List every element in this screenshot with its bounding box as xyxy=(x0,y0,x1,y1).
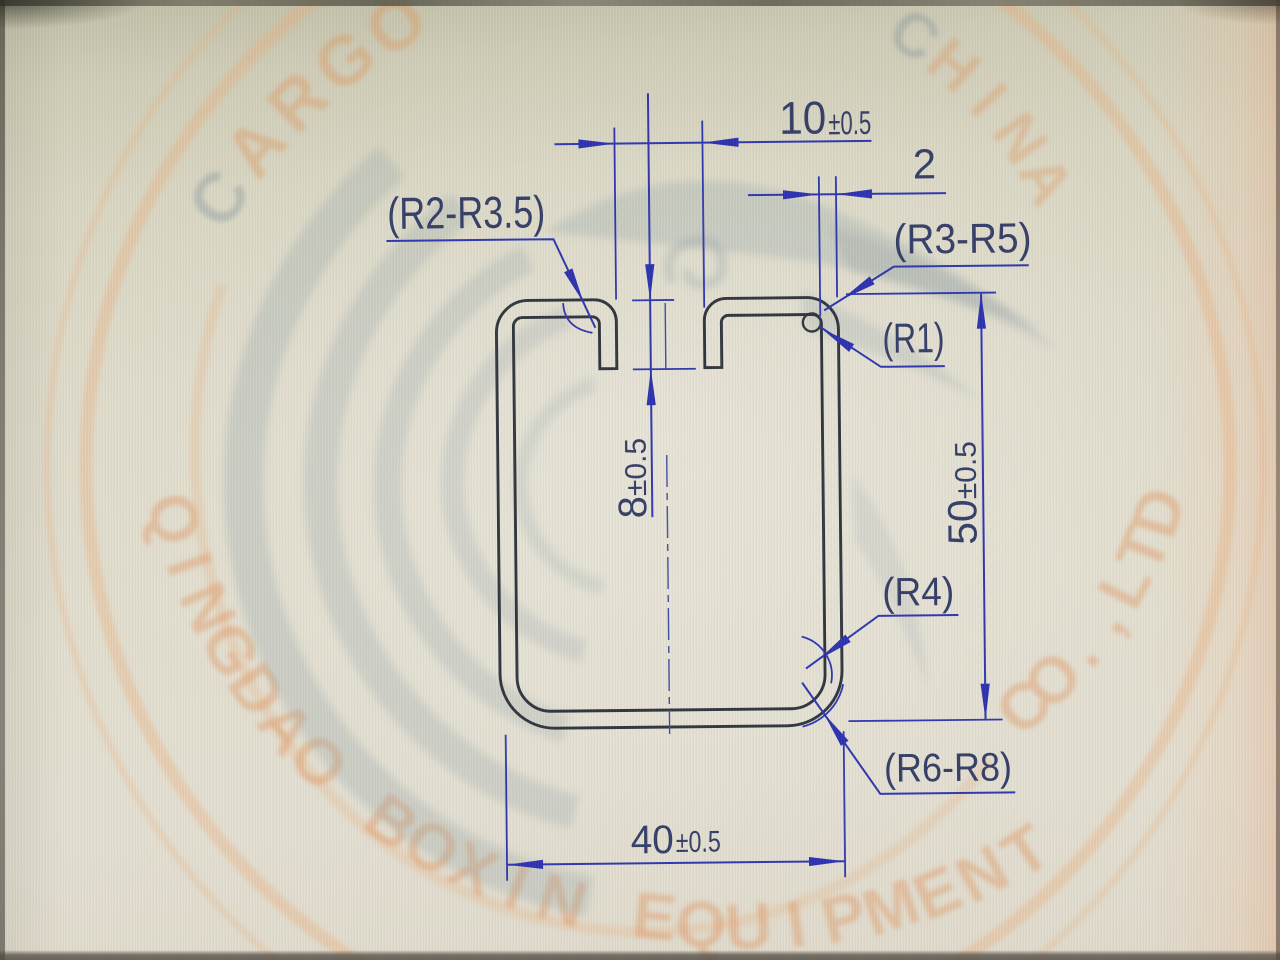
svg-text:(R1): (R1) xyxy=(882,314,944,362)
svg-text:10: 10 xyxy=(779,91,827,143)
svg-text:±0.5: ±0.5 xyxy=(828,104,871,141)
svg-text:50±0.5: 50±0.5 xyxy=(939,441,986,545)
svg-text:8±0.5: 8±0.5 xyxy=(611,438,656,519)
svg-text:(R3-R5): (R3-R5) xyxy=(893,214,1031,262)
svg-text:2: 2 xyxy=(912,140,936,187)
svg-text:±0.5: ±0.5 xyxy=(676,825,721,858)
svg-text:E: E xyxy=(629,878,680,955)
svg-text:(R4): (R4) xyxy=(882,570,954,615)
svg-text:40: 40 xyxy=(631,818,674,862)
svg-text:(R6-R8): (R6-R8) xyxy=(884,745,1012,790)
svg-text:(R2-R3.5): (R2-R3.5) xyxy=(387,186,546,239)
